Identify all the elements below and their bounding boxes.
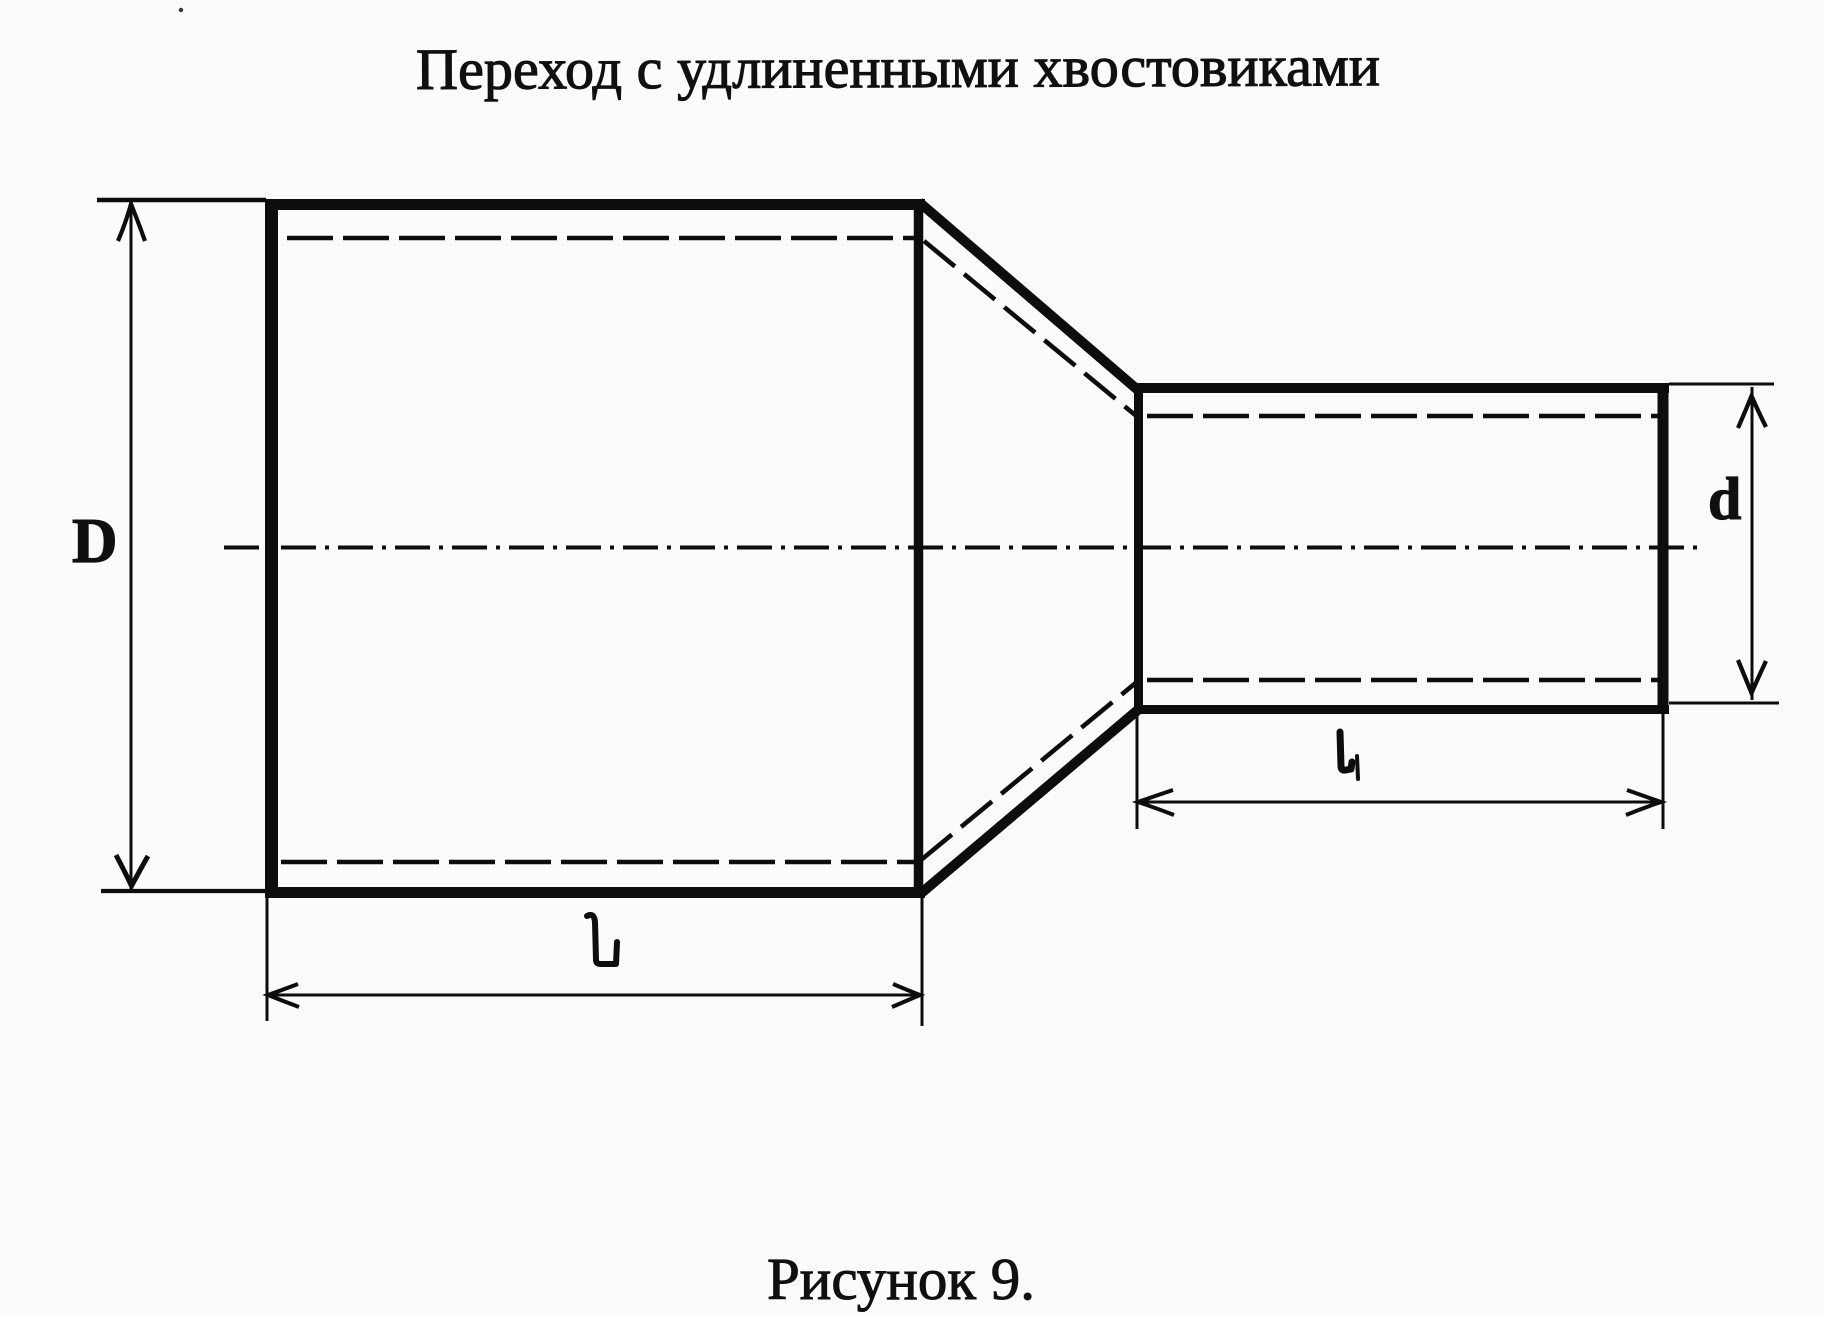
svg-text:Переход с удлиненными хвостови: Переход с удлиненными хвостовиками [416,33,1380,102]
svg-text:D: D [72,506,118,576]
svg-text:d: d [1708,466,1741,532]
svg-text:Рисунок 9.: Рисунок 9. [767,1246,1035,1312]
